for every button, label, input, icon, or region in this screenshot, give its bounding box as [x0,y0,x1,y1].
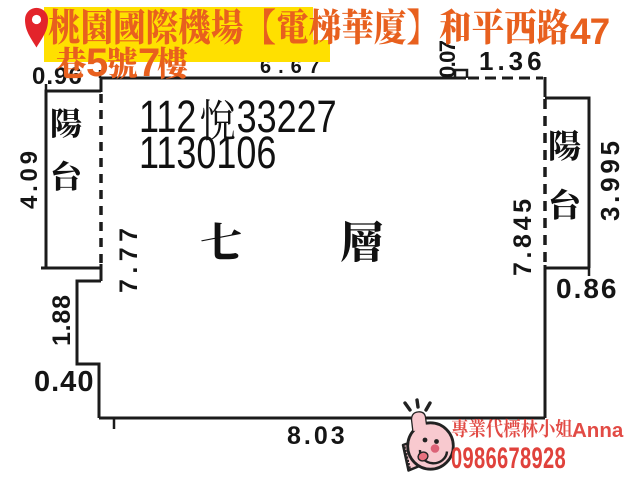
svg-text:4.09: 4.09 [16,151,43,209]
svg-text:3.995: 3.995 [595,141,625,221]
svg-text:47: 47 [570,11,609,52]
svg-text:0.07: 0.07 [435,40,460,78]
svg-text:1130106: 1130106 [139,127,276,178]
svg-text:0.86: 0.86 [556,273,619,304]
svg-text:1.36: 1.36 [479,46,546,76]
svg-text:0986678928: 0986678928 [451,442,566,475]
svg-text:7: 7 [138,41,160,85]
svg-text:0.40: 0.40 [34,366,94,398]
svg-text:Anna: Anna [572,419,624,442]
svg-text:1.88: 1.88 [48,295,76,346]
svg-text:8.03: 8.03 [287,422,348,450]
svg-text:7.845: 7.845 [509,199,537,276]
svg-text:5: 5 [86,41,108,85]
svg-text:7.77: 7.77 [115,228,143,293]
